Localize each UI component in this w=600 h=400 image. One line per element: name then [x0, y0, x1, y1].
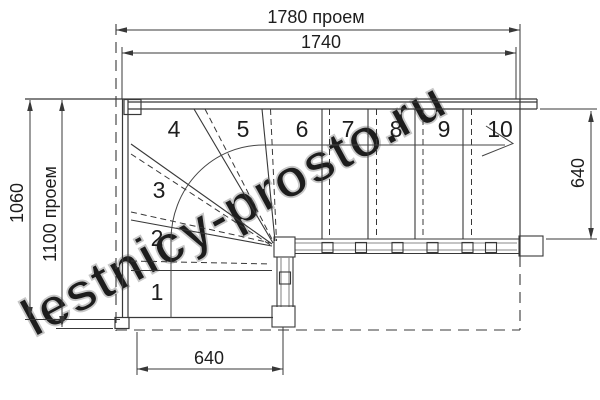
watermark-text: lestnicy-prosto.ru	[11, 70, 456, 349]
dim-top-inner-label: 1740	[301, 32, 341, 52]
watermark: lestnicy-prosto.ru	[11, 70, 456, 349]
step-label-9: 9	[438, 116, 451, 142]
step-label-3: 3	[153, 177, 166, 203]
handrail-vertical	[272, 237, 295, 327]
step-label-4: 4	[168, 116, 181, 142]
step-label-2: 2	[151, 225, 164, 251]
bottom-newel-post	[272, 306, 295, 327]
step-label-10: 10	[487, 116, 513, 142]
step-label-1: 1	[151, 279, 164, 305]
dim-top-outer-label: 1780 проем	[267, 7, 364, 27]
step-label-5: 5	[237, 116, 250, 142]
end-newel-post	[519, 236, 543, 256]
corner-newel-post	[274, 237, 295, 257]
step-label-8: 8	[390, 116, 403, 142]
dim-left-inner-label: 1100 проем	[40, 166, 60, 262]
staircase-plan-drawing: lestnicy-prosto.ru	[0, 0, 600, 400]
dimension-top-inner	[122, 47, 516, 99]
staircase-plan-page: lestnicy-prosto.ru	[0, 0, 600, 400]
dim-bottom-label: 640	[194, 348, 224, 368]
dim-left-outer-label: 1060	[7, 183, 27, 223]
step-label-7: 7	[342, 116, 355, 142]
step-label-6: 6	[296, 116, 309, 142]
handrail-horizontal	[295, 236, 543, 256]
dim-right-label: 640	[568, 158, 588, 188]
